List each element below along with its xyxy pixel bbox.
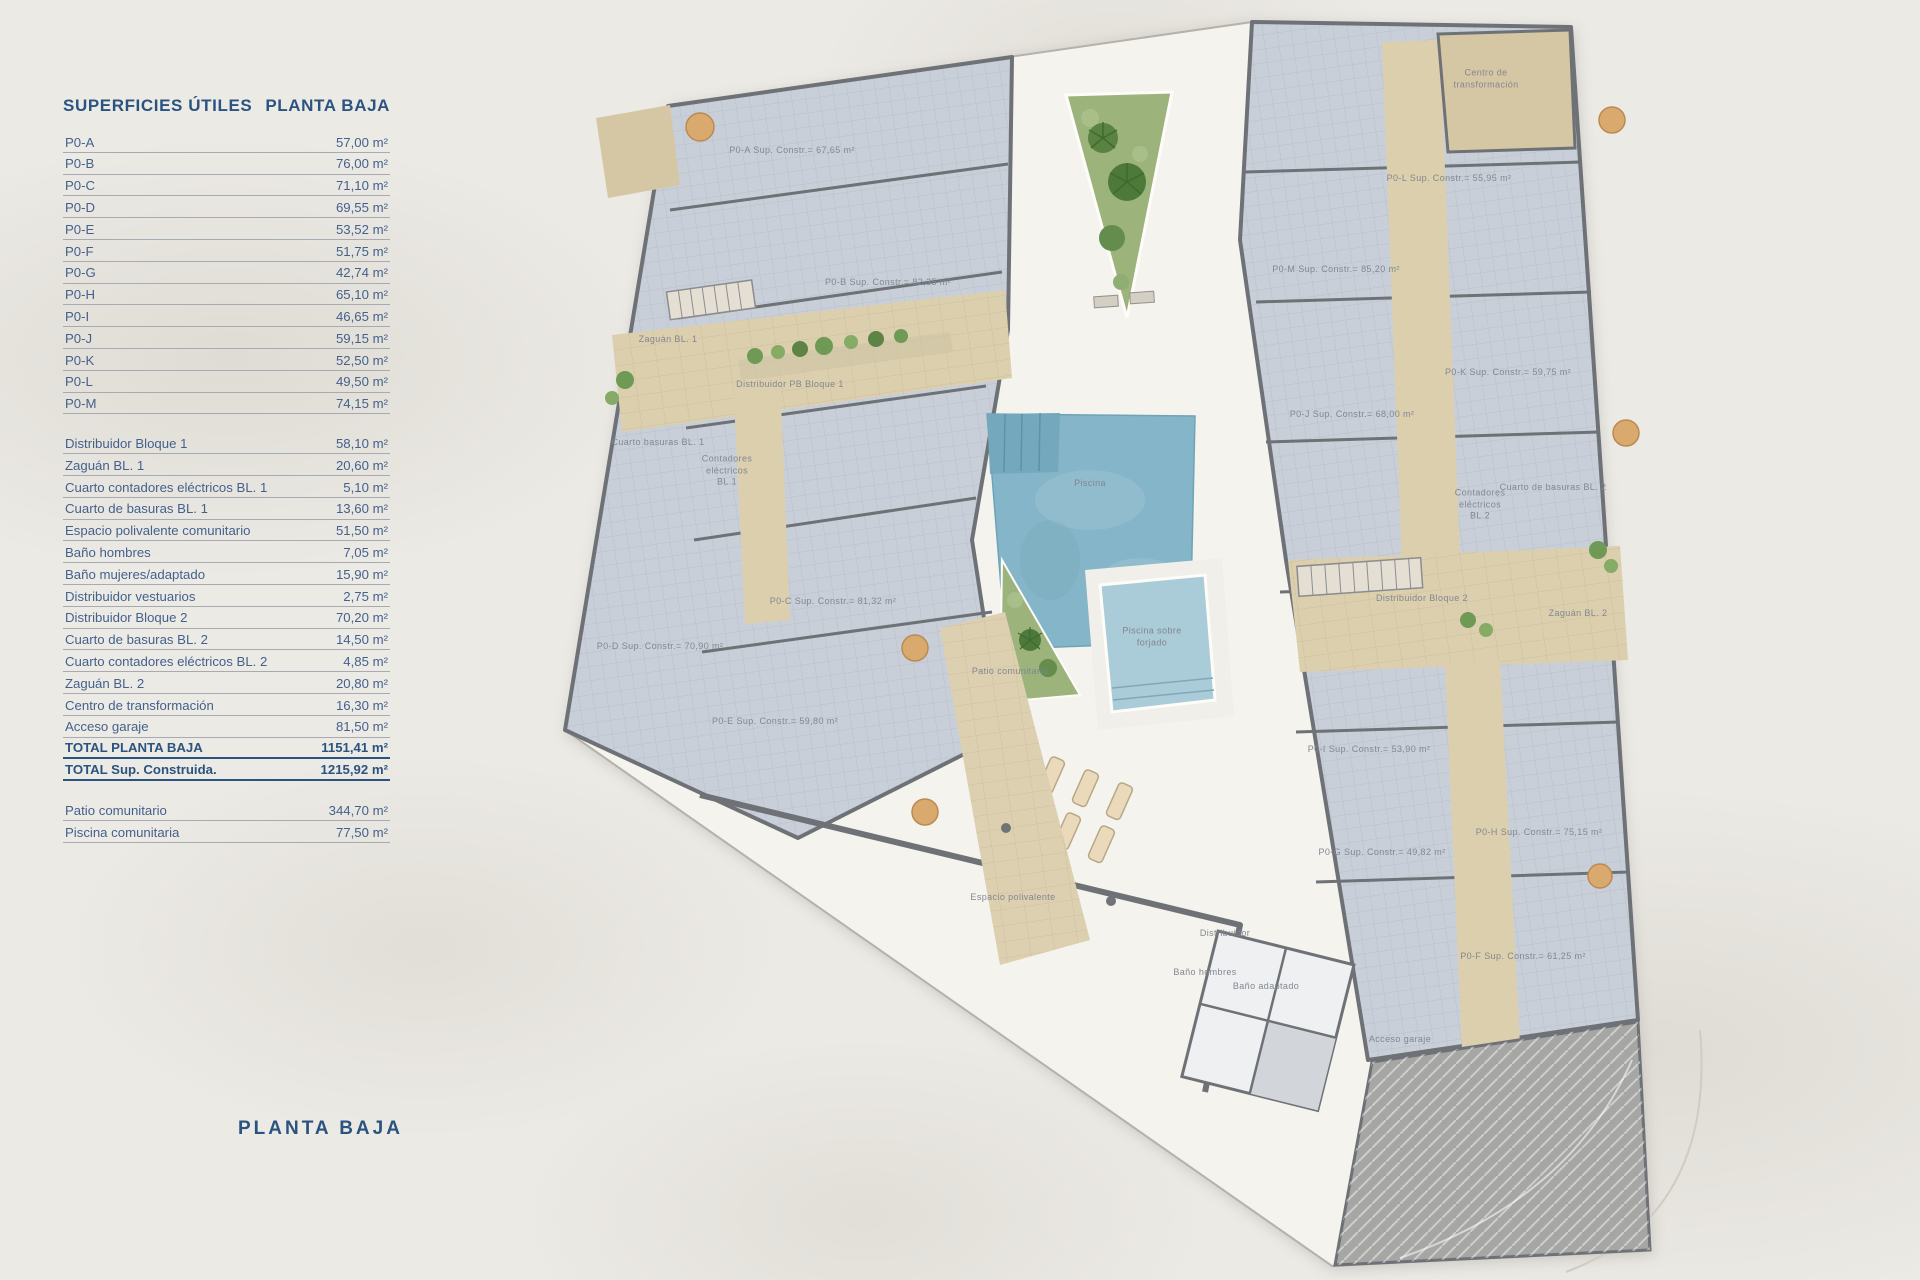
- row-label: TOTAL Sup. Construida.: [65, 762, 217, 777]
- row-value: 76,00 m²: [336, 156, 388, 171]
- row-value: 51,75 m²: [336, 244, 388, 259]
- table-row: Baño hombres 7,05 m²: [63, 541, 390, 563]
- row-label: Distribuidor Bloque 1: [65, 436, 187, 451]
- row-value: 52,50 m²: [336, 353, 388, 368]
- row-label: P0-M: [65, 396, 97, 411]
- row-value: 65,10 m²: [336, 287, 388, 302]
- table-title: SUPERFICIES ÚTILES: [63, 96, 252, 116]
- row-value: 14,50 m²: [336, 632, 388, 647]
- row-value: 1215,92 m²: [321, 762, 388, 777]
- table-row: P0-L 49,50 m²: [63, 371, 390, 393]
- row-value: 69,55 m²: [336, 200, 388, 215]
- table-row: Distribuidor Bloque 2 70,20 m²: [63, 607, 390, 629]
- table-row: Espacio polivalente comunitario 51,50 m²: [63, 520, 390, 542]
- row-value: 4,85 m²: [343, 654, 388, 669]
- row-value: 49,50 m²: [336, 374, 388, 389]
- total-rows: TOTAL PLANTA BAJA 1151,41 m² TOTAL Sup. …: [63, 738, 390, 782]
- row-label: Zaguán BL. 2: [65, 676, 144, 691]
- row-value: 77,50 m²: [336, 825, 388, 840]
- row-label: P0-K: [65, 353, 94, 368]
- row-label: P0-I: [65, 309, 89, 324]
- table-row: Zaguán BL. 2 20,80 m²: [63, 672, 390, 694]
- row-label: Baño mujeres/adaptado: [65, 567, 205, 582]
- row-value: 16,30 m²: [336, 698, 388, 713]
- row-label: P0-F: [65, 244, 94, 259]
- unit-rows: P0-A 57,00 m² P0-B 76,00 m² P0-C 71,10 m…: [63, 131, 390, 414]
- table-row: P0-F 51,75 m²: [63, 240, 390, 262]
- row-label: P0-G: [65, 265, 96, 280]
- extra-rows: Patio comunitario 344,70 m² Piscina comu…: [63, 799, 390, 843]
- row-value: 71,10 m²: [336, 178, 388, 193]
- table-row: P0-G 42,74 m²: [63, 262, 390, 284]
- row-value: 70,20 m²: [336, 610, 388, 625]
- surface-table: SUPERFICIES ÚTILES PLANTA BAJA P0-A 57,0…: [63, 96, 390, 843]
- row-value: 7,05 m²: [343, 545, 388, 560]
- row-value: 5,10 m²: [343, 480, 388, 495]
- row-value: 53,52 m²: [336, 222, 388, 237]
- table-subtitle: PLANTA BAJA: [265, 96, 390, 116]
- row-label: P0-D: [65, 200, 95, 215]
- row-label: TOTAL PLANTA BAJA: [65, 740, 203, 755]
- table-total-row: TOTAL PLANTA BAJA 1151,41 m²: [63, 738, 390, 760]
- table-row: Baño mujeres/adaptado 15,90 m²: [63, 563, 390, 585]
- row-value: 81,50 m²: [336, 719, 388, 734]
- row-value: 57,00 m²: [336, 135, 388, 150]
- row-value: 20,60 m²: [336, 458, 388, 473]
- row-value: 59,15 m²: [336, 331, 388, 346]
- row-label: Cuarto contadores eléctricos BL. 1: [65, 480, 267, 495]
- table-row: P0-B 76,00 m²: [63, 153, 390, 175]
- table-row: P0-M 74,15 m²: [63, 393, 390, 415]
- row-label: Centro de transformación: [65, 698, 214, 713]
- table-row: P0-A 57,00 m²: [63, 131, 390, 153]
- row-value: 20,80 m²: [336, 676, 388, 691]
- block-1: [565, 57, 1012, 838]
- row-label: P0-H: [65, 287, 95, 302]
- table-row: P0-K 52,50 m²: [63, 349, 390, 371]
- table-row: P0-E 53,52 m²: [63, 218, 390, 240]
- table-row: Cuarto de basuras BL. 1 13,60 m²: [63, 498, 390, 520]
- table-row: Cuarto contadores eléctricos BL. 2 4,85 …: [63, 650, 390, 672]
- table-row: P0-J 59,15 m²: [63, 327, 390, 349]
- row-label: Distribuidor Bloque 2: [65, 610, 187, 625]
- table-row: Distribuidor Bloque 1 58,10 m²: [63, 432, 390, 454]
- row-value: 15,90 m²: [336, 567, 388, 582]
- common-rows: Distribuidor Bloque 1 58,10 m² Zaguán BL…: [63, 432, 390, 737]
- row-value: 58,10 m²: [336, 436, 388, 451]
- table-row: Cuarto de basuras BL. 2 14,50 m²: [63, 629, 390, 651]
- table-row: P0-H 65,10 m²: [63, 284, 390, 306]
- table-row: Centro de transformación 16,30 m²: [63, 694, 390, 716]
- row-label: Acceso garaje: [65, 719, 149, 734]
- table-row: Acceso garaje 81,50 m²: [63, 716, 390, 738]
- sheet-title: PLANTA BAJA: [238, 1118, 403, 1140]
- table-row: P0-C 71,10 m²: [63, 175, 390, 197]
- row-label: Cuarto de basuras BL. 2: [65, 632, 208, 647]
- row-value: 1151,41 m²: [321, 740, 388, 755]
- row-value: 46,65 m²: [336, 309, 388, 324]
- row-label: P0-L: [65, 374, 93, 389]
- row-value: 2,75 m²: [343, 589, 388, 604]
- table-row: P0-I 46,65 m²: [63, 305, 390, 327]
- table-row: Distribuidor vestuarios 2,75 m²: [63, 585, 390, 607]
- row-label: Patio comunitario: [65, 803, 167, 818]
- table-row: Cuarto contadores eléctricos BL. 1 5,10 …: [63, 476, 390, 498]
- table-total-row: TOTAL Sup. Construida. 1215,92 m²: [63, 759, 390, 781]
- row-label: Piscina comunitaria: [65, 825, 179, 840]
- table-header: SUPERFICIES ÚTILES PLANTA BAJA: [63, 96, 390, 116]
- plan-sheet: P0-A Sup. Constr.= 67,65 m² P0-B Sup. Co…: [0, 0, 1920, 1280]
- row-label: Zaguán BL. 1: [65, 458, 144, 473]
- row-label: Espacio polivalente comunitario: [65, 523, 250, 538]
- table-row: Zaguán BL. 1 20,60 m²: [63, 454, 390, 476]
- row-value: 13,60 m²: [336, 501, 388, 516]
- table-row: Piscina comunitaria 77,50 m²: [63, 821, 390, 843]
- row-label: Cuarto de basuras BL. 1: [65, 501, 208, 516]
- row-label: P0-J: [65, 331, 92, 346]
- row-label: P0-E: [65, 222, 94, 237]
- table-row: P0-D 69,55 m²: [63, 196, 390, 218]
- row-label: Baño hombres: [65, 545, 151, 560]
- row-label: Distribuidor vestuarios: [65, 589, 195, 604]
- row-label: P0-A: [65, 135, 94, 150]
- table-row: Patio comunitario 344,70 m²: [63, 799, 390, 821]
- row-label: P0-C: [65, 178, 95, 193]
- row-value: 51,50 m²: [336, 523, 388, 538]
- row-label: P0-B: [65, 156, 94, 171]
- row-value: 74,15 m²: [336, 396, 388, 411]
- row-value: 344,70 m²: [329, 803, 388, 818]
- row-label: Cuarto contadores eléctricos BL. 2: [65, 654, 267, 669]
- row-value: 42,74 m²: [336, 265, 388, 280]
